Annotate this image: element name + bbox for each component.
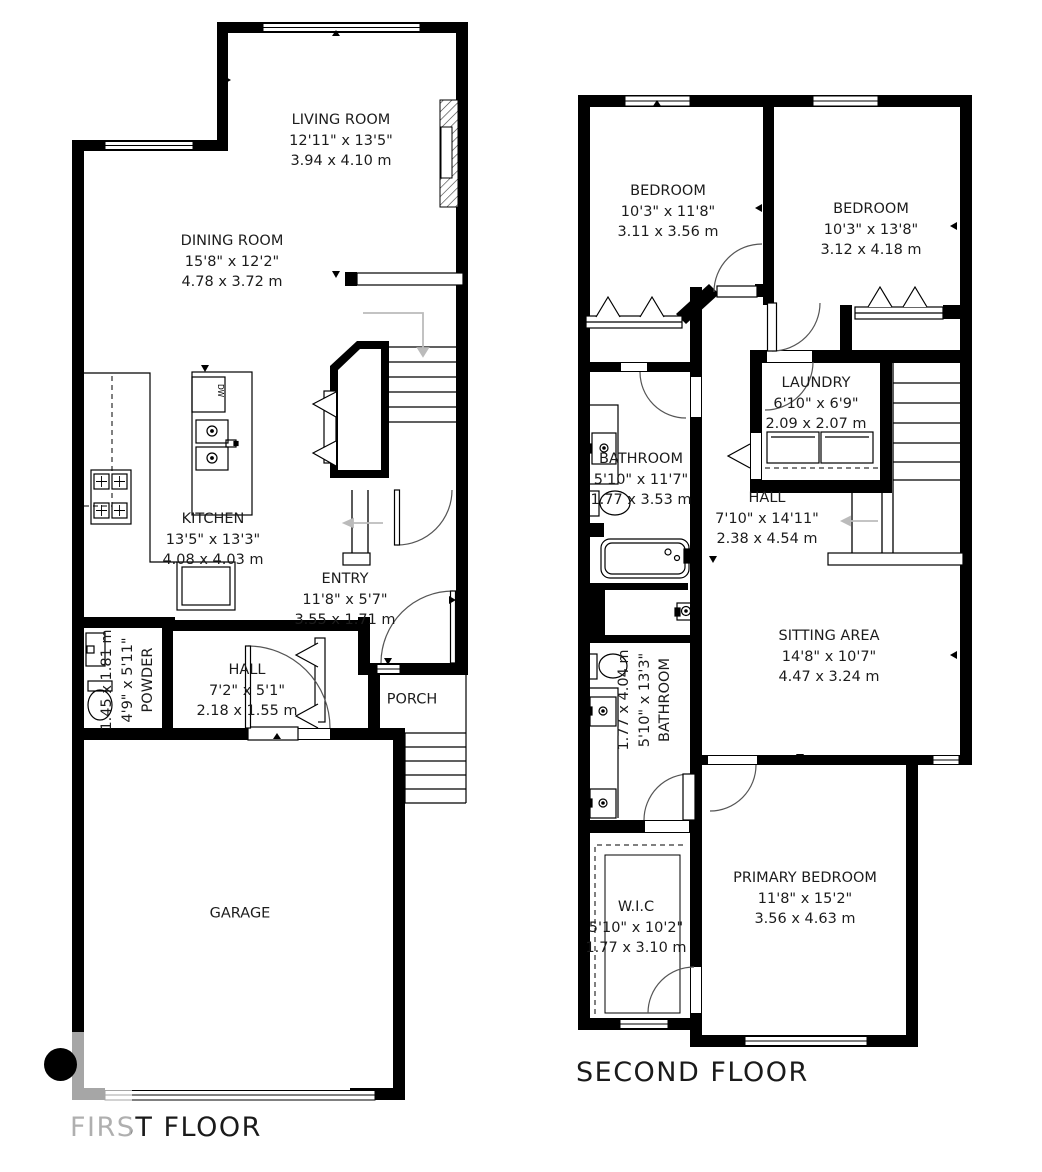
fireplace-icon (440, 100, 458, 207)
bathroom-top-door-arc (640, 372, 686, 418)
first-floor-stairs (389, 347, 456, 422)
room-label-bathroom-bottom: 1.77 x 4.04 m 5'10" x 13'3" BATHROOM (614, 649, 676, 750)
second-floor-stairs (852, 363, 960, 553)
room-label-bathroom-top: BATHROOM 5'10" x 11'7" 1.77 x 3.53 m (590, 449, 691, 511)
floor-plan-drawing: DW (0, 0, 1042, 1172)
linen-closet-bifold (728, 444, 750, 468)
bedroom-right-door-arc (772, 303, 820, 351)
floor-plan-page: DW (0, 0, 1042, 1172)
room-label-porch: PORCH (387, 690, 438, 711)
stair-closet-interior (338, 349, 381, 470)
room-label-sitting-area: SITTING AREA 14'8" x 10'7" 4.47 x 3.24 m (778, 626, 879, 688)
stair-railing-band (828, 553, 963, 565)
hall-closet-bifold (296, 638, 325, 728)
first-floor-walls (72, 22, 468, 1100)
bedroom-left-door-arc (714, 244, 762, 292)
first-floor-plan: DW (72, 22, 468, 1100)
garage-door-opening (298, 729, 330, 739)
watermark-logo (28, 1032, 132, 1148)
room-label-hall: HALL 7'2" x 5'1" 2.18 x 1.55 m (196, 660, 297, 722)
room-label-dining-room: DINING ROOM 15'8" x 12'2" 4.78 x 3.72 m (181, 231, 284, 293)
stair-railing (352, 490, 368, 553)
room-label-entry: ENTRY 11'8" x 5'7" 3.55 x 1.71 m (294, 569, 395, 631)
room-label-bedroom-left: BEDROOM 10'3" x 11'8" 3.11 x 3.56 m (617, 181, 718, 243)
room-label-powder: 1.45 x 1.81 m 4'9" x 5'11" POWDER (97, 629, 159, 730)
dishwasher-label: DW (216, 384, 225, 398)
room-label-wic: W.I.C 5'10" x 10'2" 1.77 x 3.10 m (585, 897, 686, 959)
second-floor-title: SECOND FLOOR (576, 1057, 809, 1088)
primary-bedroom-door-arc (710, 765, 756, 811)
room-label-bedroom-right: BEDROOM 10'3" x 13'8" 3.12 x 4.18 m (820, 199, 921, 261)
kitchen-fixtures (84, 372, 252, 610)
room-label-living-room: LIVING ROOM 12'11" x 13'5" 3.94 x 4.10 m (289, 110, 393, 172)
room-label-laundry: LAUNDRY 6'10" x 6'9" 2.09 x 2.07 m (765, 373, 866, 435)
stairs-closet-bifold (313, 391, 336, 466)
garage-door-threshold (248, 727, 298, 740)
stair-hall-door-arc (397, 490, 452, 545)
stair-direction-arrow (842, 517, 878, 525)
watermark-circle-icon (44, 1048, 77, 1081)
stove-icon (91, 470, 131, 524)
railing-end (343, 553, 370, 565)
room-label-kitchen: KITCHEN 13'5" x 13'3" 4.08 x 4.03 m (162, 509, 263, 571)
washer-dryer-icons (765, 432, 878, 468)
bathtub-icon (601, 539, 689, 578)
room-label-primary-bedroom: PRIMARY BEDROOM 11'8" x 15'2" 3.56 x 4.6… (733, 868, 877, 930)
room-label-hall-second: HALL 7'10" x 14'11" 2.38 x 4.54 m (715, 488, 819, 550)
stair-landing (357, 273, 463, 285)
room-label-garage: GARAGE (210, 904, 271, 925)
wic-door-arc (648, 967, 694, 1013)
